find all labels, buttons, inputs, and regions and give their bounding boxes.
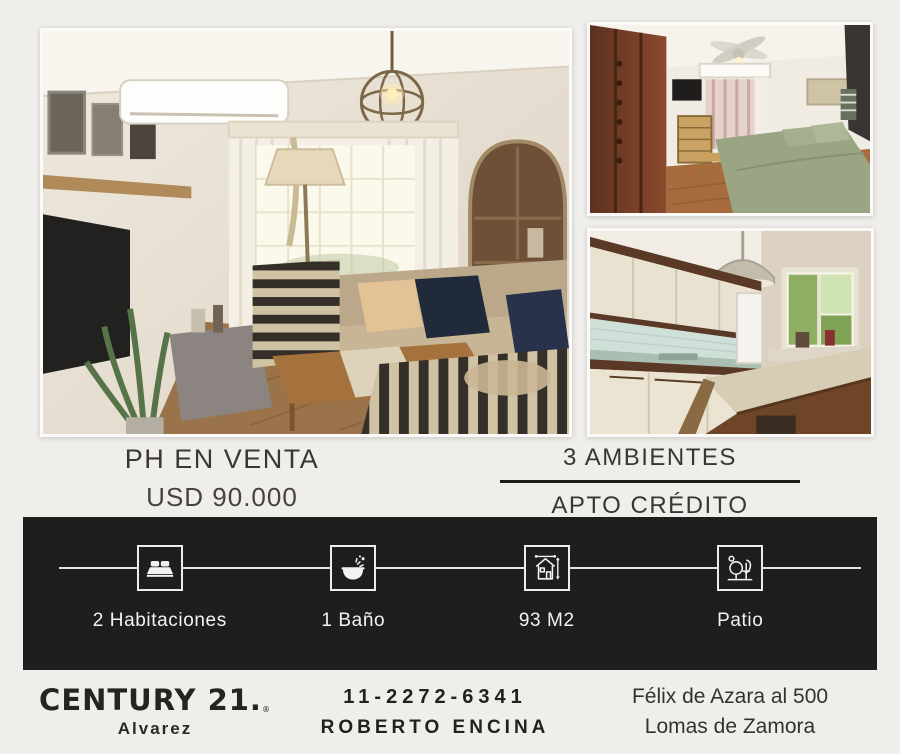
bath-icon-box: [330, 545, 376, 591]
brand-block: CENTURY 21.® Alvarez: [0, 686, 310, 739]
phone-number: 11-2272-6341: [343, 686, 526, 709]
contact-block: 11-2272-6341 ROBERTO ENCINA: [310, 686, 560, 739]
bedroom-scene: [590, 25, 870, 213]
living-room-photo: [40, 28, 572, 437]
bath-icon: [336, 551, 370, 585]
listing-title: PH EN VENTA: [40, 444, 404, 475]
address-line-1: Félix de Azara al 500: [632, 682, 828, 712]
bed-icon: [143, 551, 177, 585]
living-room-scene: [43, 31, 569, 434]
feature-bathrooms-label: 1 Baño: [321, 610, 385, 632]
address-line-2: Lomas de Zamora: [645, 712, 815, 742]
feature-area-label: 93 M2: [519, 610, 575, 632]
kitchen-photo: [587, 228, 874, 437]
listing-rooms-block: 3 AMBIENTES APTO CRÉDITO: [478, 444, 822, 520]
area-icon: [530, 551, 564, 585]
rooms-count: 3 AMBIENTES: [478, 444, 822, 472]
brand-name: CENTURY 21.: [39, 683, 262, 717]
kitchen-scene: [590, 231, 871, 434]
feature-bedrooms: 2 Habitaciones: [63, 545, 257, 632]
listing-title-block: PH EN VENTA USD 90.000: [40, 444, 404, 513]
listing-price: USD 90.000: [40, 482, 404, 513]
registered-mark: ®: [262, 705, 271, 714]
feature-patio: Patio: [644, 545, 838, 632]
features-banner: 2 Habitaciones 1 Baño: [23, 517, 877, 670]
credit-eligible-label: APTO CRÉDITO: [478, 492, 822, 520]
bedroom-photo: [587, 22, 873, 216]
patio-icon: [723, 551, 757, 585]
feature-bedrooms-label: 2 Habitaciones: [93, 610, 227, 632]
features-row: 2 Habitaciones 1 Baño: [23, 517, 877, 632]
feature-patio-label: Patio: [717, 610, 763, 632]
divider-line: [500, 480, 800, 483]
area-icon-box: [524, 545, 570, 591]
address-block: Félix de Azara al 500 Lomas de Zamora: [560, 682, 900, 743]
brand-logo: CENTURY 21.®: [39, 686, 271, 715]
feature-area: 93 M2: [450, 545, 644, 632]
footer: CENTURY 21.® Alvarez 11-2272-6341 ROBERT…: [0, 670, 900, 754]
bed-icon-box: [137, 545, 183, 591]
agent-name: ROBERTO ENCINA: [321, 717, 550, 739]
feature-bathrooms: 1 Baño: [257, 545, 451, 632]
brand-office: Alvarez: [118, 719, 192, 739]
patio-icon-box: [717, 545, 763, 591]
real-estate-flyer: PH EN VENTA USD 90.000 3 AMBIENTES APTO …: [0, 0, 900, 754]
